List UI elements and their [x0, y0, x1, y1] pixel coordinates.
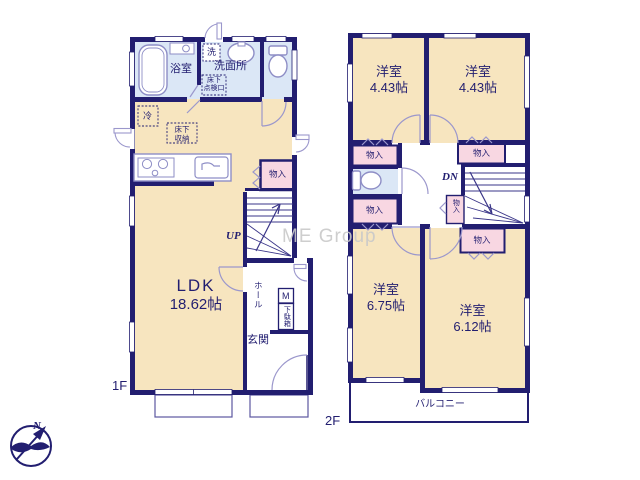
floor1-steps — [155, 395, 308, 417]
label-bedroom-ne: 洋室 4.43帖 — [432, 64, 524, 95]
label-washer: 洗 — [207, 47, 216, 58]
label-stairs-dn: DN — [442, 171, 458, 184]
label-hall: ホール — [253, 281, 263, 310]
label-underfloor-storage: 床下 収納 — [167, 125, 197, 143]
label-ldk: LDK 18.62帖 — [150, 276, 242, 314]
label-washroom: 洗面所 — [214, 60, 247, 73]
toilet-icon-2f — [353, 171, 382, 190]
compass-icon — [10, 426, 51, 466]
label-closet-2f-3: 物入 — [352, 205, 397, 215]
label-entrance: 玄関 — [247, 334, 269, 347]
label-bedroom-se: 洋室 6.12帖 — [425, 303, 520, 334]
kitchen-counter-icon — [134, 154, 231, 181]
label-underfloor-access: 床下 点検口 — [202, 77, 226, 93]
toilet-icon-1f — [269, 46, 287, 77]
label-bedroom-sw: 洋室 6.75帖 — [351, 282, 421, 313]
label-stairs-up: UP — [226, 230, 241, 243]
label-bedroom-nw: 洋室 4.43帖 — [352, 64, 426, 95]
label-refrigerator: 冷 — [143, 111, 152, 122]
label-compass-north: N — [33, 420, 41, 433]
floor2-stairs — [465, 172, 525, 223]
label-closet-2f-2: 物入 — [458, 148, 505, 158]
label-closet-1f: 物入 — [260, 169, 295, 179]
label-floor1: 1F — [112, 378, 127, 394]
label-closet-2f-5: 物入 — [451, 199, 459, 213]
label-balcony: バルコニー — [390, 399, 490, 411]
label-closet-2f-4: 物入 — [460, 235, 504, 245]
floor-plan-canvas: ME Group 浴室 洗 洗面所 床下 点検口 冷 床下 収納 物入 UP L… — [0, 0, 640, 480]
label-closet-2f-1: 物入 — [352, 150, 397, 160]
label-shoe-cabinet: 下駄箱 — [282, 306, 290, 327]
watermark: ME Group — [282, 226, 377, 248]
label-bathroom: 浴室 — [170, 63, 192, 76]
label-meter-box: M — [282, 291, 290, 302]
label-floor2: 2F — [325, 413, 340, 429]
